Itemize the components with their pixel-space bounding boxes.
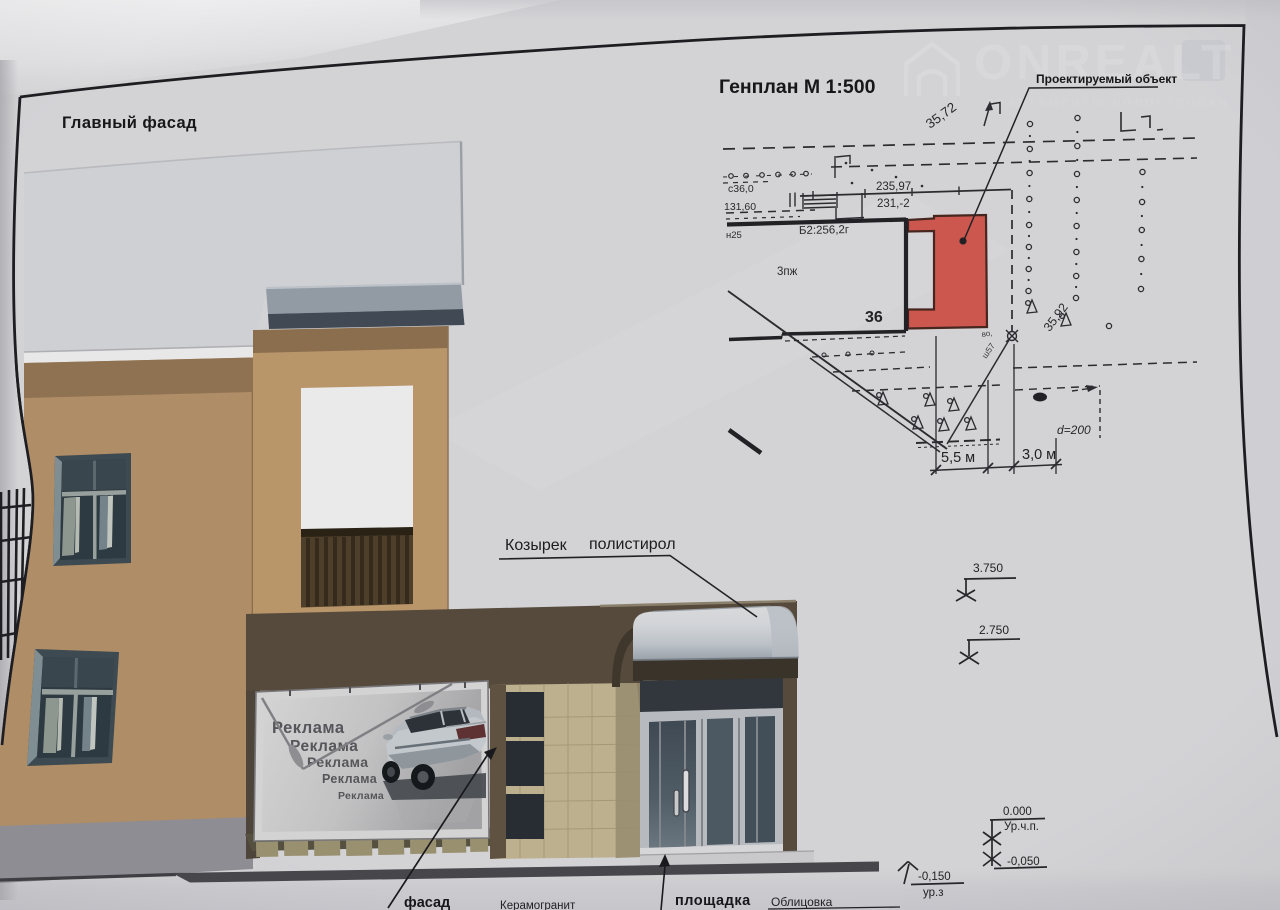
svg-text:Генплан М 1:500: Генплан М 1:500	[719, 76, 876, 98]
svg-text:Керамогранит: Керамогранит	[500, 900, 576, 910]
svg-text:3.750: 3.750	[973, 561, 1003, 575]
svg-text:d=200: d=200	[1057, 423, 1091, 437]
svg-text:во,: во,	[981, 329, 993, 339]
svg-text:Ур.ч.п.: Ур.ч.п.	[1004, 821, 1039, 833]
svg-text:2.750: 2.750	[979, 623, 1009, 637]
svg-text:Реклама: Реклама	[322, 772, 378, 786]
svg-text:3пж: 3пж	[777, 266, 798, 278]
svg-text:Проектируемый объект: Проектируемый объект	[1036, 72, 1177, 86]
svg-text:фасад: фасад	[404, 895, 450, 910]
svg-text:Облицовка: Облицовка	[771, 895, 833, 909]
svg-text:н25: н25	[726, 230, 742, 241]
svg-text:Реклама: Реклама	[338, 790, 384, 802]
svg-text:апартаменты новостройки: апартаменты новостройки	[986, 93, 1230, 109]
svg-text:235,97: 235,97	[876, 181, 911, 193]
svg-text:0.000: 0.000	[1003, 806, 1032, 818]
svg-text:ур.з: ур.з	[923, 887, 943, 899]
svg-text:36: 36	[865, 309, 883, 326]
svg-text:5,5 м: 5,5 м	[941, 450, 975, 466]
svg-text:231,-2: 231,-2	[877, 198, 910, 210]
svg-text:Козырек: Козырек	[505, 537, 568, 554]
svg-text:-0,050: -0,050	[1007, 856, 1040, 868]
svg-text:Главный фасад: Главный фасад	[62, 114, 197, 132]
svg-text:с36,0: с36,0	[728, 183, 754, 195]
svg-text:Б2:256,2г: Б2:256,2г	[799, 224, 849, 237]
svg-text:Реклама: Реклама	[290, 738, 358, 755]
svg-text:-0,150: -0,150	[918, 871, 951, 883]
svg-text:131,60: 131,60	[724, 201, 756, 213]
svg-text:3,0 м: 3,0 м	[1022, 447, 1056, 463]
svg-text:полистирол: полистирол	[589, 536, 676, 553]
svg-text:площадка: площадка	[675, 893, 751, 909]
